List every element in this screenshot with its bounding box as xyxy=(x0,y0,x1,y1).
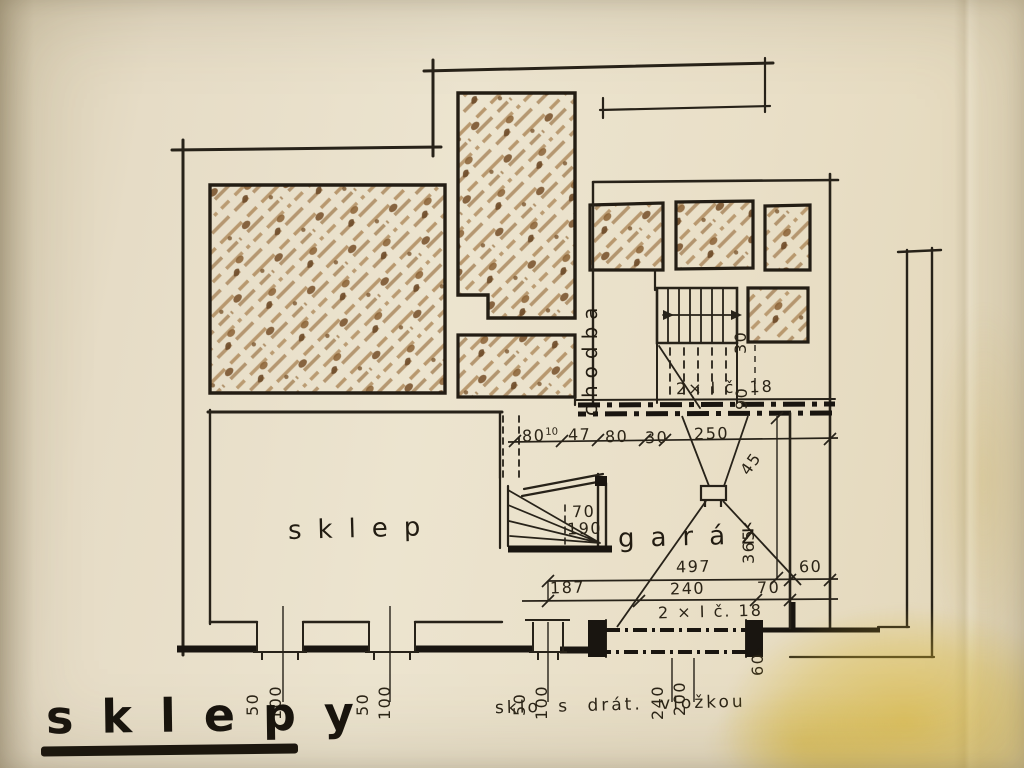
dim-80a: 80 xyxy=(522,426,546,446)
beam-note-upper: 2× I č. 18 xyxy=(676,379,774,398)
dim-30-cell: 30 xyxy=(733,331,749,354)
lintel-dashdot-lines xyxy=(578,404,835,414)
hatched-cell-4 xyxy=(748,288,808,342)
room-label-corridor: chodba xyxy=(580,300,600,416)
dim-47: 47 xyxy=(568,427,592,444)
dim-190-winder: 190 xyxy=(567,521,602,538)
floor-plan-drawing xyxy=(0,0,1024,768)
dim-door-200: 200 xyxy=(672,681,688,716)
dim-60-door-side: 60 xyxy=(750,653,766,676)
hatched-room-top-middle xyxy=(458,93,575,318)
dim-sup-10: 10 xyxy=(545,427,558,438)
hatched-cell-2 xyxy=(676,201,753,269)
dim-80b: 80 xyxy=(605,429,629,446)
dim-w3-50: 50 xyxy=(512,693,528,716)
hatched-cell-1 xyxy=(590,203,663,270)
beam-note-door: 2 × I č. 18 xyxy=(658,603,763,622)
winder-post xyxy=(595,476,607,486)
room-label-cellar: sklep xyxy=(288,514,437,544)
dim-30: 30 xyxy=(645,430,669,447)
dim-90: 90 xyxy=(734,387,750,410)
dim-365: 365 xyxy=(741,529,757,564)
dim-70-right: 70 xyxy=(757,580,781,597)
garage-center-post xyxy=(701,486,726,507)
dim-187: 187 xyxy=(550,580,585,597)
dim-80-sup10: 8010 xyxy=(522,428,559,445)
right-wall-strip xyxy=(790,248,941,657)
dim-250: 250 xyxy=(694,426,729,443)
dim-door-240: 240 xyxy=(650,685,666,720)
hatched-room-mid xyxy=(458,335,575,397)
drawing-title: sklepy xyxy=(46,690,382,741)
dim-w3-100: 100 xyxy=(534,685,550,720)
scanned-floor-plan: sklep garáž chodba sklo s drát. vložkou … xyxy=(0,0,1024,768)
hatched-cell-3 xyxy=(765,205,810,270)
garage-door xyxy=(588,620,763,657)
hatched-room-top-left xyxy=(210,185,445,393)
dim-240: 240 xyxy=(670,581,705,598)
dim-497: 497 xyxy=(676,559,711,576)
dim-60-wall: 60 xyxy=(799,559,823,576)
